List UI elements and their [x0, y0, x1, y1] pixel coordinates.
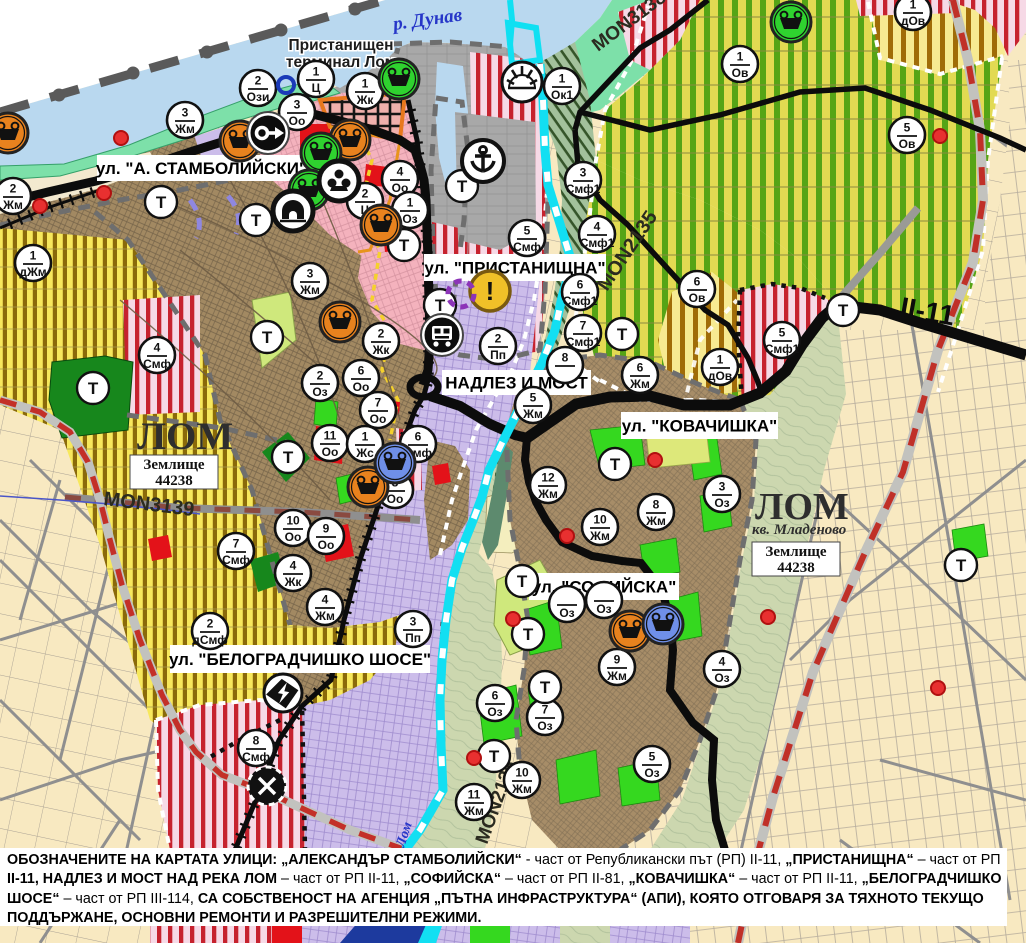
svg-text:Оо: Оо [289, 114, 306, 128]
svg-text:8: 8 [653, 498, 660, 512]
svg-text:Землище: Землище [765, 544, 827, 560]
svg-text:3: 3 [580, 166, 587, 180]
svg-text:2: 2 [378, 327, 385, 341]
svg-text:10: 10 [515, 766, 529, 780]
svg-text:44238: 44238 [155, 473, 193, 489]
svg-text:1: 1 [30, 249, 37, 263]
svg-text:6: 6 [637, 361, 644, 375]
svg-text:Жм: Жм [606, 669, 627, 683]
svg-text:Жм: Жм [299, 283, 320, 297]
svg-text:2: 2 [255, 74, 262, 88]
svg-text:2: 2 [317, 369, 324, 383]
svg-text:Т: Т [88, 379, 99, 398]
svg-text:1: 1 [737, 50, 744, 64]
svg-text:Жк: Жк [284, 575, 303, 589]
svg-text:7: 7 [233, 537, 240, 551]
svg-text:Оо: Оо [370, 412, 387, 426]
svg-text:Ок1: Ок1 [551, 88, 573, 102]
svg-text:Оо: Оо [285, 530, 302, 544]
svg-text:Оз: Оз [644, 766, 659, 780]
svg-text:Смф: Смф [143, 357, 171, 371]
svg-text:7: 7 [542, 703, 549, 717]
svg-text:Жм: Жм [2, 198, 23, 212]
svg-text:2: 2 [10, 182, 17, 196]
svg-text:1: 1 [717, 353, 724, 367]
svg-text:Оо: Оо [387, 492, 404, 506]
svg-text:Оз: Оз [714, 496, 729, 510]
svg-text:4: 4 [719, 655, 726, 669]
svg-text:Землище: Землище [143, 457, 205, 473]
svg-text:Смф: Смф [222, 553, 250, 567]
svg-text:Ов: Ов [899, 137, 916, 151]
svg-text:ул. "А. СТАМБОЛИЙСКИ": ул. "А. СТАМБОЛИЙСКИ" [96, 159, 307, 178]
svg-text:Т: Т [540, 678, 551, 697]
svg-text:Смф1: Смф1 [580, 236, 615, 250]
svg-text:11: 11 [324, 429, 337, 443]
svg-text:4: 4 [594, 220, 601, 234]
svg-text:Т: Т [617, 325, 628, 344]
svg-text:Жм: Жм [537, 487, 558, 501]
svg-text:10: 10 [286, 514, 300, 528]
svg-text:Жм: Жм [174, 122, 195, 136]
svg-text:5: 5 [530, 391, 537, 405]
svg-text:Оз: Оз [714, 671, 729, 685]
svg-text:5: 5 [649, 750, 656, 764]
svg-text:Оз: Оз [487, 705, 502, 719]
svg-text:Жк: Жк [372, 343, 391, 357]
svg-text:Т: Т [489, 747, 500, 766]
svg-text:Ц: Ц [312, 81, 321, 95]
svg-text:Жм: Жм [463, 804, 484, 818]
svg-text:Оз: Оз [312, 385, 327, 399]
svg-text:6: 6 [492, 689, 499, 703]
svg-text:ул. "КОВАЧИШКА": ул. "КОВАЧИШКА" [622, 417, 778, 436]
svg-text:8: 8 [253, 734, 260, 748]
svg-text:4: 4 [290, 559, 297, 573]
svg-text:6: 6 [415, 430, 422, 444]
svg-text:7: 7 [375, 396, 382, 410]
svg-text:1: 1 [910, 0, 917, 12]
svg-text:11: 11 [468, 788, 481, 802]
svg-text:!: ! [486, 276, 495, 306]
svg-text:Жк: Жк [356, 93, 375, 107]
svg-text:4: 4 [397, 165, 404, 179]
svg-text:1: 1 [362, 430, 369, 444]
svg-text:Т: Т [399, 236, 410, 255]
svg-text:1: 1 [559, 72, 566, 86]
svg-text:10: 10 [593, 513, 607, 527]
svg-text:Жм: Жм [522, 407, 543, 421]
svg-text:4: 4 [322, 593, 329, 607]
svg-text:8: 8 [562, 351, 569, 365]
svg-text:1: 1 [362, 77, 369, 91]
svg-text:Ози: Ози [247, 90, 270, 104]
svg-text:3: 3 [307, 267, 314, 281]
svg-text:Т: Т [517, 572, 528, 591]
svg-text:5: 5 [524, 224, 531, 238]
svg-text:дСмф: дСмф [192, 633, 228, 647]
svg-text:ул. "БЕЛОГРАДЧИШКО ШОСЕ": ул. "БЕЛОГРАДЧИШКО ШОСЕ" [169, 650, 431, 669]
svg-text:Т: Т [956, 556, 967, 575]
svg-text:9: 9 [323, 522, 330, 536]
svg-text:7: 7 [580, 319, 587, 333]
svg-text:Т: Т [283, 448, 294, 467]
svg-text:4: 4 [154, 341, 161, 355]
svg-text:3: 3 [294, 98, 301, 112]
svg-text:3: 3 [719, 480, 726, 494]
svg-text:Т: Т [262, 328, 273, 347]
svg-text:12: 12 [541, 471, 555, 485]
svg-text:1: 1 [407, 196, 414, 210]
svg-text:Ов: Ов [732, 66, 749, 80]
svg-text:дОв: дОв [708, 369, 732, 383]
svg-text:3: 3 [182, 106, 189, 120]
svg-text:Пп: Пп [405, 631, 421, 645]
svg-text:2: 2 [362, 187, 369, 201]
svg-text:Смф1: Смф1 [765, 342, 800, 356]
svg-text:Т: Т [457, 177, 468, 196]
svg-text:Т: Т [610, 455, 621, 474]
svg-text:44238: 44238 [777, 560, 815, 576]
svg-text:Жм: Жм [629, 377, 650, 391]
svg-text:Оо: Оо [318, 538, 335, 552]
svg-text:Ов: Ов [689, 291, 706, 305]
svg-text:Жс: Жс [355, 446, 374, 460]
svg-text:Смф: Смф [242, 750, 270, 764]
svg-text:Оз: Оз [559, 606, 574, 620]
svg-text:2: 2 [207, 617, 214, 631]
svg-text:5: 5 [904, 121, 911, 135]
svg-text:2: 2 [495, 332, 502, 346]
svg-text:1: 1 [313, 65, 320, 79]
svg-text:9: 9 [614, 653, 621, 667]
svg-text:Оо: Оо [322, 445, 339, 459]
svg-text:Пристанищен: Пристанищен [289, 37, 394, 54]
svg-text:Т: Т [523, 625, 534, 644]
svg-text:кв. Младеново: кв. Младеново [752, 522, 846, 538]
svg-text:Жм: Жм [589, 529, 610, 543]
svg-text:Пп: Пп [490, 348, 506, 362]
svg-text:Жм: Жм [645, 514, 666, 528]
svg-text:Оз: Оз [402, 212, 417, 226]
svg-text:Жм: Жм [314, 609, 335, 623]
svg-text:Т: Т [435, 296, 446, 315]
svg-text:Смф1: Смф1 [566, 182, 601, 196]
svg-text:Оо: Оо [353, 380, 370, 394]
svg-text:ЛОМ: ЛОМ [137, 415, 233, 458]
svg-text:5: 5 [779, 326, 786, 340]
svg-text:6: 6 [694, 275, 701, 289]
svg-text:дОв: дОв [901, 14, 925, 28]
svg-text:Смф: Смф [513, 240, 541, 254]
svg-text:Т: Т [838, 301, 849, 320]
svg-text:Оз: Оз [537, 719, 552, 733]
svg-text:Оз: Оз [596, 602, 611, 616]
svg-text:3: 3 [410, 615, 417, 629]
svg-text:Т: Т [156, 193, 167, 212]
svg-text:дЖм: дЖм [19, 265, 46, 279]
svg-text:Т: Т [251, 211, 262, 230]
svg-text:Жм: Жм [511, 782, 532, 796]
svg-text:6: 6 [358, 364, 365, 378]
